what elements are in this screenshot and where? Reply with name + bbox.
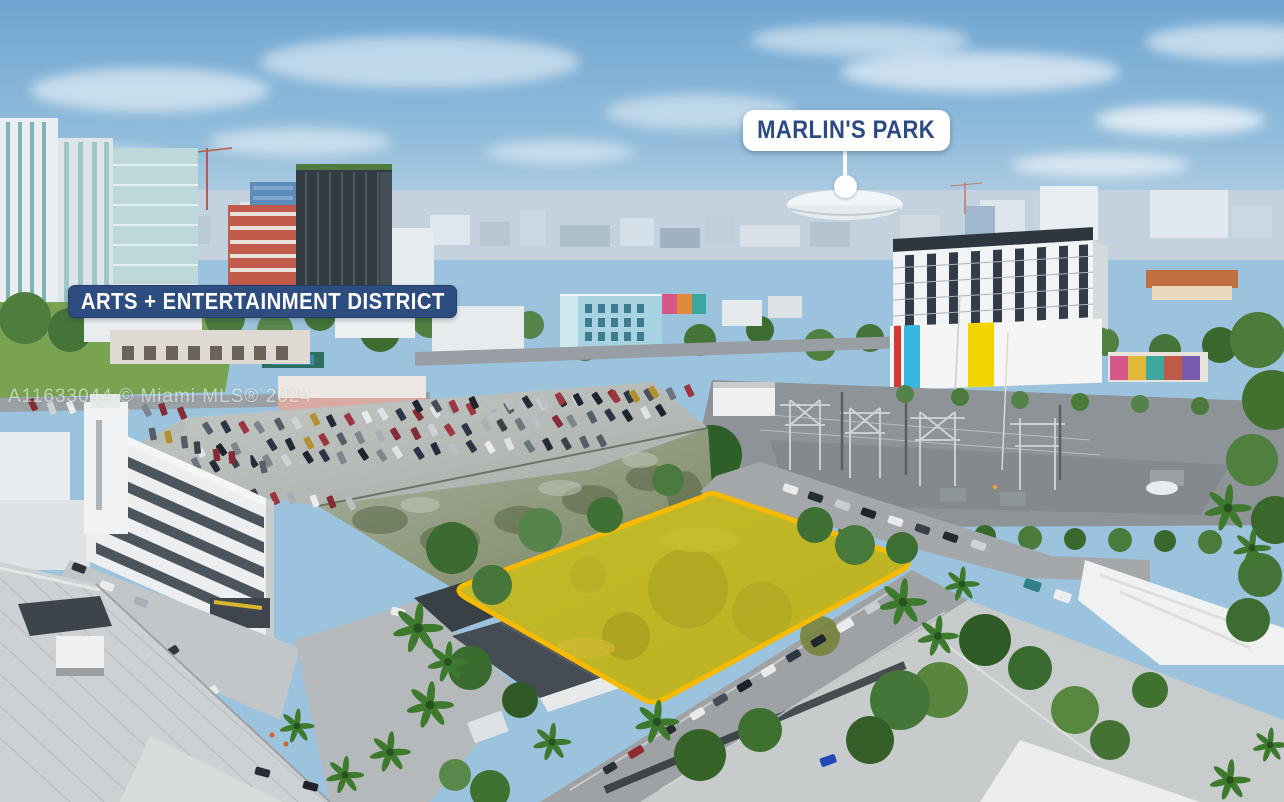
mls-watermark: A11633044 © Miami MLS® 2024	[8, 386, 312, 408]
callout-label: MARLIN'S PARK	[757, 116, 935, 145]
district-banner: ARTS + ENTERTAINMENT DISTRICT	[68, 285, 457, 318]
district-banner-label: ARTS + ENTERTAINMENT DISTRICT	[80, 288, 444, 315]
callout-box: MARLIN'S PARK	[743, 110, 950, 151]
callout-dot	[834, 175, 857, 198]
aerial-photo-stage: A11633044 © Miami MLS® 2024 ARTS + ENTER…	[0, 0, 1284, 802]
callout-stem	[843, 150, 847, 177]
striped-building	[890, 227, 1108, 390]
